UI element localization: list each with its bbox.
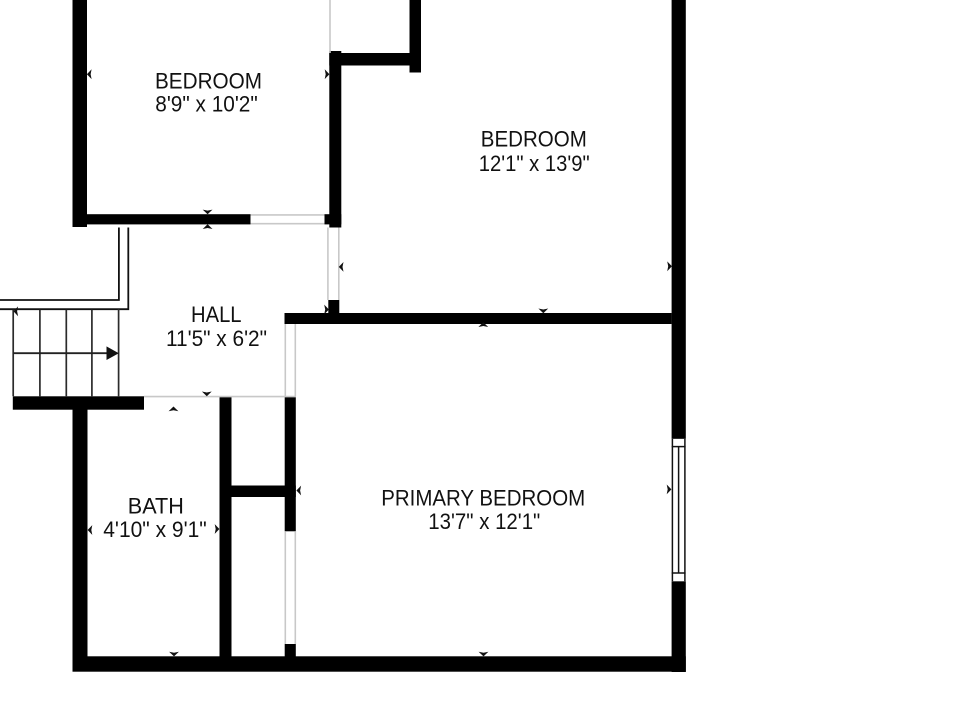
svg-text:BEDROOM: BEDROOM (155, 68, 262, 93)
svg-text:HALL: HALL (191, 302, 242, 327)
svg-text:BEDROOM: BEDROOM (481, 127, 587, 152)
svg-text:8'9" x 10'2": 8'9" x 10'2" (155, 92, 258, 117)
svg-text:4'10" x 9'1": 4'10" x 9'1" (103, 517, 207, 542)
svg-text:12'1" x 13'9": 12'1" x 13'9" (479, 151, 590, 176)
svg-text:PRIMARY BEDROOM: PRIMARY BEDROOM (381, 485, 585, 510)
svg-text:11'5" x 6'2": 11'5" x 6'2" (166, 326, 267, 351)
svg-text:13'7" x 12'1": 13'7" x 12'1" (428, 509, 540, 534)
svg-text:BATH: BATH (128, 494, 184, 519)
